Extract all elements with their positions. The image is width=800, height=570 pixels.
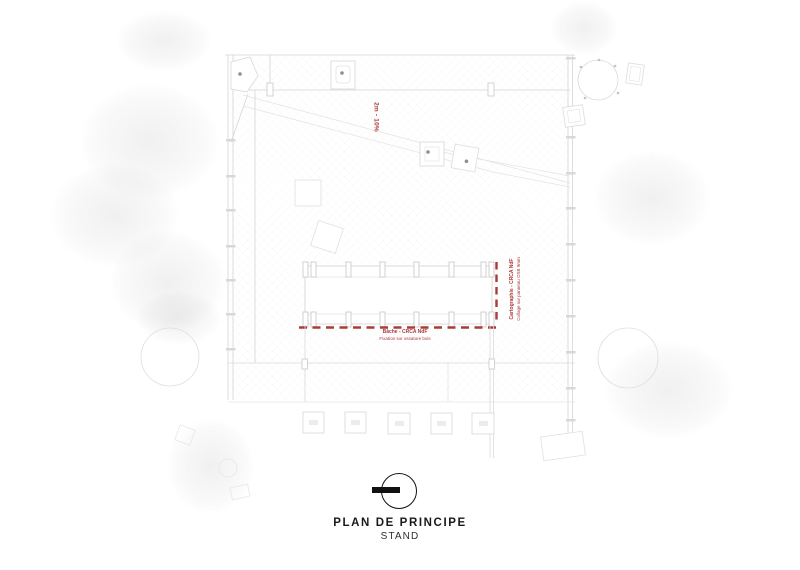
site-walls [225,55,575,435]
bottom-seat-row [303,412,494,434]
cartography-note-line1: Cartographie - CRCA NdF [509,257,516,321]
ramp-lines [243,95,570,187]
tree-top-right [578,59,619,100]
cartography-note-line2: Collage sur panneau OSB 9mm [516,257,523,321]
tree-planter-mid-1 [420,142,444,166]
plan-subtitle: STAND [0,531,800,542]
top-band [231,83,570,142]
tilted-table [541,431,586,461]
lower-plaza-lines [228,325,575,458]
stand-structure [303,262,494,327]
tarp-note-line2: Fixation sur ossature bois [379,336,430,342]
wall-ticks [226,57,576,422]
cartography-note: Cartographie - CRCA NdF Collage sur pann… [509,257,523,321]
plan-title: PLAN DE PRINCIPE [0,517,800,529]
ramp-slope-label: 2m - 10% [373,102,380,132]
plan-canvas: 2m - 10% Cartographie - CRCA NdF Collage… [0,0,800,570]
tarp-note: Bâche - CRCA NdF Fixation sur ossature b… [379,329,430,342]
tree-planter-top [331,61,355,89]
plaza-squares [295,180,343,253]
scatter-objects [175,425,250,500]
tree-planter-mid-2 [451,144,479,172]
planter-top-right [626,63,645,85]
tarp-note-line1: Bâche - CRCA NdF [379,329,430,336]
planter-right [563,105,586,128]
north-symbol-bar [372,487,400,493]
tree-planter-top-left [231,57,258,92]
